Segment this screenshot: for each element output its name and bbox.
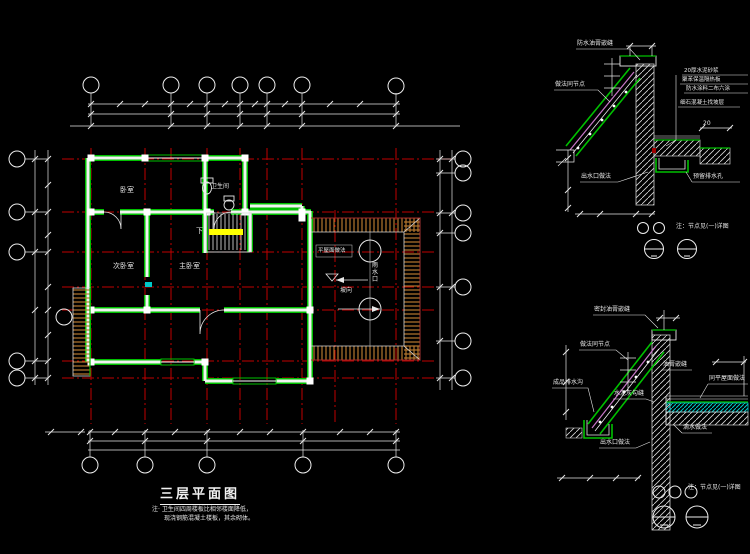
plan-note-2: 现浇钢筋混凝土楼板，其余砌体。 [164,515,254,522]
plan-title: 三层平面图 [160,483,240,505]
stair-down-label: 下 [196,228,203,235]
roof-terrace [311,218,420,360]
detail-a-layer1-label: 20厚水泥砂浆 [684,68,719,75]
detail-wall-hatch [636,64,654,205]
detail-a-dim20-label: 20 [703,120,711,127]
detail-a-samenode-label: 做法同节点 [555,81,585,88]
balcony-left [73,288,90,376]
plan-note-1: 注· 卫生间四周楼板比相邻楼面降低， [152,506,252,513]
waterproof-cyan-band [666,403,748,412]
detail-b-flatroof-label: 同平屋面做法 [709,375,745,382]
detail-a-drainhole-label: 预留排水孔 [693,173,723,180]
detail-b-seal-label: 密封油膏嵌缝 [594,306,630,313]
plan-stairs [207,213,252,252]
detail-b-drip-label: 滴水做法 [683,424,707,431]
slope-arrowhead [372,306,380,312]
room-label-right: 主卧室 [179,263,200,270]
room-label-left: 次卧室 [113,263,134,270]
roof-drain-label: 雨水口 [372,262,380,283]
detail-a-layer4-label: 细石混凝土找坡层 [680,100,724,107]
detail-b-samenode-label: 做法同节点 [580,341,610,348]
detail-a-note: 注：节点见(一)详图 [676,223,729,230]
detail-b-sealstrip-label: 油膏嵌缝 [663,361,687,368]
tag-cyan [145,282,152,287]
detail-a-layer3-label: 防水涂料二布六涂 [686,86,730,93]
slope-label: 坡向 [340,287,352,294]
detail-a-seal-label: 防水油膏嵌缝 [577,40,613,47]
detail-b-note: 注：节点见(一)详图 [688,484,741,491]
slope-arrowhead [336,277,344,283]
dimension-ticks [32,101,455,444]
detail-b-pointing-label: 水泥灰勾缝 [614,390,644,397]
roof-note-label: 平屋面做法 [318,248,346,255]
detail-a-outlet-label: 出水口做法 [581,173,611,180]
room-label-bathroom: 卫生间 [211,183,229,190]
detail-b-outlet-label: 出水口做法 [600,439,630,446]
stair-handrail-highlight [209,229,243,235]
room-label-bedroom: 卧室 [120,187,134,194]
cad-canvas: 卧室 卫生间 下 次卧室 主卧室 平屋面做法 坡向 雨水口 三层平面图 注· 卫… [0,0,750,554]
detail-a-layer2-label: 聚苯保温隔热板 [682,77,721,84]
detail-b-gutter-label: 成品排水沟 [553,379,583,386]
